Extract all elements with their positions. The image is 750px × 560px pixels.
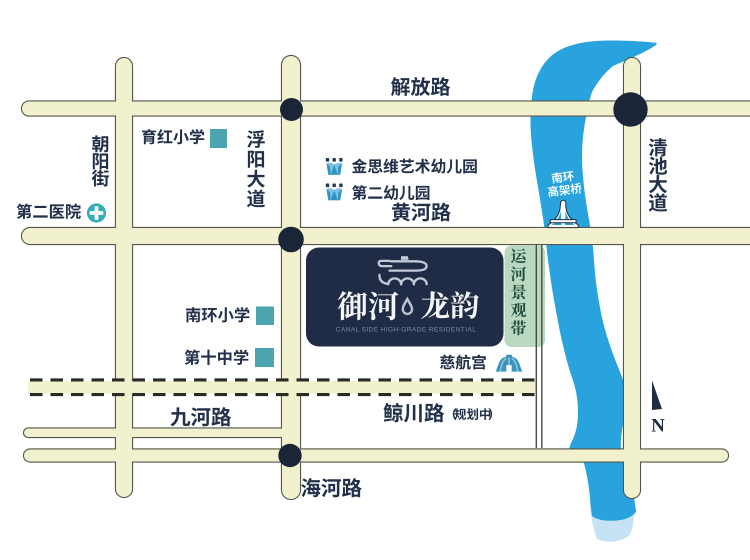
- svg-text:CANAL SIDE HIGH-GRADE RESIDENT: CANAL SIDE HIGH-GRADE RESIDENTIAL: [336, 327, 477, 334]
- svg-text:N: N: [651, 416, 665, 437]
